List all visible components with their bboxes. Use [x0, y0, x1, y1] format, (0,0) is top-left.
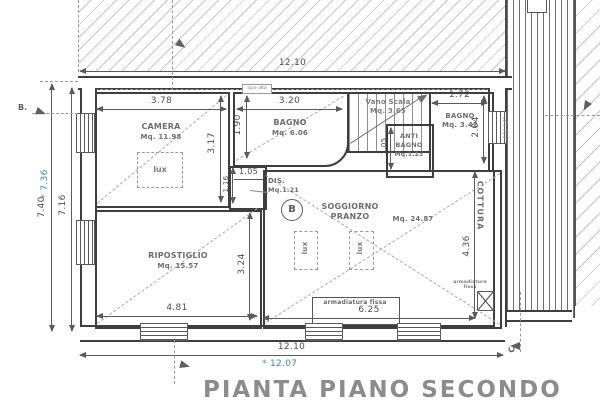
dim-arrow-icon — [247, 212, 253, 219]
label-vano-scala: Vano Scala Mq. 3.65 — [352, 98, 424, 116]
lux-text: lux — [301, 242, 309, 255]
star-icon: * — [40, 194, 50, 199]
ripostiglio-area: Mq. 15.57 — [157, 262, 198, 270]
label-ripostiglio: RIPOSTIGLIO Mq. 15.57 — [128, 251, 228, 272]
dim-line — [97, 109, 226, 110]
point-b-circle: B — [281, 199, 303, 221]
star-icon: * — [262, 359, 267, 369]
dim-line — [80, 71, 505, 72]
dim-anti-bagno-height-label: 1.05 — [380, 126, 388, 166]
dim-arrow-icon — [481, 95, 487, 102]
dim-arrow-icon — [244, 152, 250, 159]
marker-b-side-text: B. — [18, 103, 27, 112]
dim-bagno1-width: 3.20 — [237, 94, 342, 112]
dim-ripostiglio-width-label: 4.81 — [97, 303, 257, 313]
lux-label-1: lux — [301, 228, 309, 268]
dim-line — [263, 318, 475, 319]
dim-arrow-icon — [230, 197, 236, 204]
dim-bottom-width-variant: * 12.07 — [262, 359, 297, 369]
window-left-1 — [76, 113, 95, 153]
dim-arrow-icon — [218, 95, 224, 102]
dim-top-width-label: 12.10 — [80, 58, 505, 68]
extension-dash — [40, 81, 78, 82]
dim-left-inner-label: 7.16 — [58, 185, 68, 225]
camera-name: CAMERA — [141, 122, 180, 131]
dim-bagno1-width-label: 3.20 — [237, 96, 342, 106]
dim-line — [237, 109, 342, 110]
section-c-line-top — [545, 115, 600, 116]
stair-note-text: 0.93 0.90 — [503, 117, 508, 139]
dim-bottom-variant-label: 12.07 — [270, 359, 297, 369]
label-dis: DIS. Mq.1.21 — [268, 177, 312, 195]
label-bagno1: BAGNO Mq. 6.06 — [245, 118, 335, 139]
dim-line — [51, 84, 52, 331]
dim-line — [71, 88, 72, 331]
drawing-title-text: PIANTA PIANO SECONDO — [203, 377, 562, 400]
dim-line — [80, 355, 503, 356]
dim-arrow-icon — [49, 83, 55, 90]
camera-area: Mq. 11.98 — [140, 133, 181, 141]
dim-arrow-icon — [49, 325, 55, 332]
window-bottom-1 — [140, 323, 188, 341]
bagno2-area: Mq. 3.42 — [442, 121, 478, 129]
dim-line — [232, 168, 233, 203]
dim-bottom-width: 12.10 — [80, 340, 503, 358]
dim-left-variant-label: 7.36 — [40, 169, 50, 190]
deck-stairs-strip — [505, 0, 575, 318]
lux-label-2: lux — [356, 228, 364, 268]
luce-alta-text: luce alta — [247, 86, 266, 91]
bagno1-area: Mq. 6.06 — [272, 129, 308, 137]
lux-box-camera: lux — [137, 152, 183, 188]
lux-text: lux — [356, 242, 364, 255]
roof-hatch-right — [574, 0, 600, 306]
label-camera: CAMERA Mq. 11.98 — [116, 122, 206, 143]
dim-arrow-icon — [230, 167, 236, 174]
bagno2-name: BAGNO — [445, 112, 474, 120]
dim-arrow-icon — [472, 312, 478, 319]
section-a-line-bottom — [174, 340, 175, 384]
dim-top-width: 12.10 — [80, 56, 505, 74]
anti-bagno-line2: BAGNO — [395, 141, 422, 149]
deck-bottom-band — [505, 310, 572, 322]
dim-arrow-icon — [247, 314, 253, 321]
label-anti-bagno: ANTI BAGNO Mq.1.23 — [388, 132, 430, 159]
label-soggiorno-area: Mq. 24.87 — [390, 215, 436, 224]
dim-bottom-width-label: 12.10 — [80, 342, 503, 352]
dim-arrow-icon — [244, 95, 250, 102]
cottura-text: COTTURA — [476, 181, 485, 231]
window-bottom-2 — [305, 323, 343, 341]
soggiorno-area: Mq. 24.87 — [392, 215, 433, 223]
dim-bagno1-height-label: 1.90 — [233, 105, 243, 145]
lux-text: lux — [153, 165, 167, 174]
dim-line — [234, 179, 263, 180]
dim-camera-width: 3.78 — [97, 94, 226, 112]
dim-arrow-icon — [388, 163, 394, 170]
bagno1-name: BAGNO — [273, 118, 306, 127]
cottura-label: COTTURA — [476, 170, 485, 242]
section-a-flag-bottom — [179, 360, 195, 371]
soggiorno-line1: SOGGIORNO — [322, 202, 379, 211]
section-c-line-bottom — [520, 292, 521, 352]
window-bottom-3 — [397, 323, 441, 341]
ripostiglio-name: RIPOSTIGLIO — [148, 251, 208, 260]
dim-ripostiglio-width: 4.81 — [97, 301, 257, 319]
stair-note: 0.93 0.90 — [503, 105, 508, 151]
floor-plan-canvas: armadiatura fissa armadiatura fissa 12.1… — [0, 0, 600, 400]
dim-arrow-icon — [481, 157, 487, 164]
dis-name: DIS. — [268, 177, 285, 185]
anti-bagno-area: Mq.1.23 — [395, 151, 424, 158]
section-c-text: C — [508, 346, 517, 352]
anti-bagno-line1: ANTI — [400, 132, 418, 140]
vano-scala-name: Vano Scala — [365, 98, 410, 106]
soggiorno-line2: PRANZO — [331, 212, 370, 221]
point-b-text: B — [288, 204, 296, 215]
dim-arrow-icon — [69, 87, 75, 94]
section-a-line-top — [172, 0, 173, 90]
dim-line — [249, 213, 250, 320]
dim-dis-width-label: 1.05 — [234, 167, 263, 176]
dim-dis-height-label: 1.16 — [222, 164, 230, 204]
deck-notch — [527, 0, 547, 13]
dim-soggiorno-width-label: 6.25 — [263, 305, 475, 315]
marker-b-side: B. — [18, 103, 27, 112]
dis-area: Mq.1.21 — [268, 186, 299, 194]
label-bagno2: BAGNO Mq. 3.42 — [430, 112, 490, 130]
dim-camera-height-label: 3.17 — [207, 123, 217, 163]
dim-dis-width: 1.05 — [234, 164, 263, 182]
label-soggiorno: SOGGIORNO PRANZO — [302, 202, 398, 223]
dim-arrow-icon — [69, 325, 75, 332]
window-left-2 — [76, 220, 95, 265]
dim-line — [97, 316, 257, 317]
vano-scala-area: Mq. 3.65 — [370, 107, 406, 115]
luce-alta-tag: luce alta — [242, 84, 272, 94]
drawing-title: PIANTA PIANO SECONDO — [203, 377, 562, 400]
dim-soggiorno-width: 6.25 — [263, 303, 475, 321]
dim-camera-width-label: 3.78 — [97, 96, 226, 106]
dim-ripostiglio-height-label: 3.24 — [237, 244, 247, 284]
dim-soggiorno-height-label: 4.36 — [462, 226, 472, 266]
section-c-label: C — [508, 330, 517, 370]
dim-left-variant: * 7.36 — [40, 164, 50, 204]
